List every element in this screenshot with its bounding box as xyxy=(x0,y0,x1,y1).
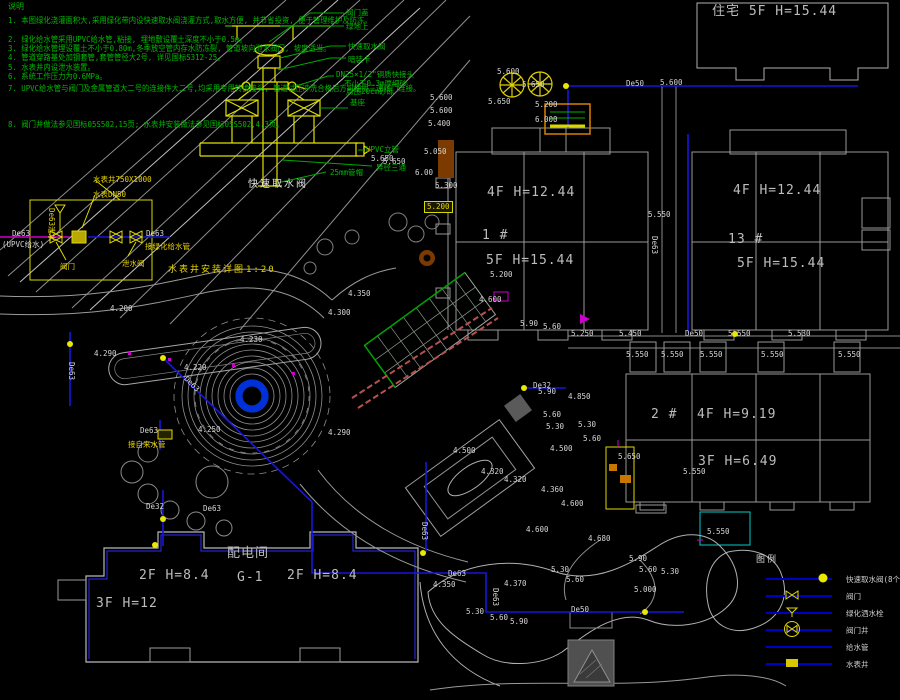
elevation-label: 5.250 xyxy=(571,330,594,338)
cad-drawing-canvas: 说明 1. 本图绿化浇灌面积大,采用绿化带内设快速取水阀浇灌方式,取水方便, 并… xyxy=(0,0,900,700)
meter-detail-label: (UPVC给水) xyxy=(2,241,44,249)
elevation-label: 5.600 xyxy=(660,79,683,87)
detail-part-label: 25mm管帽 xyxy=(330,169,363,177)
building-label: 13 # xyxy=(728,233,763,246)
elevation-label: 4.350 xyxy=(348,290,371,298)
detail-part-label: 周围20cm砂砾 xyxy=(346,88,394,96)
elevation-label: 5.30 xyxy=(661,568,679,576)
elevation-label: 4.250 xyxy=(198,426,221,434)
elevation-label: 5.60 xyxy=(543,323,561,331)
pavilion xyxy=(504,394,532,422)
elevation-label: 5.550 xyxy=(707,528,730,536)
building-label: 4F H=9.19 xyxy=(697,408,776,421)
fountain-pool xyxy=(239,383,265,409)
elevation-label: 5.30 xyxy=(546,423,564,431)
legend-item-valve: 阀门 xyxy=(756,588,898,605)
building-label: 2 # xyxy=(651,408,677,421)
legend-item-label: 阀门井 xyxy=(846,625,869,636)
elevation-label: 5.050 xyxy=(424,148,447,156)
meter-detail-label: 接绿化给水管 xyxy=(145,243,190,251)
elevation-label: 5.600 xyxy=(430,94,453,102)
boxed-elevation-label: 5.200 xyxy=(424,201,453,213)
pipe-size-label: De50 xyxy=(685,330,703,338)
pipe-size-label: De63 xyxy=(140,427,158,435)
elevation-label: 6.000 xyxy=(535,116,558,124)
pipe-size-label: De32 xyxy=(146,503,164,511)
building-label: 配电间 xyxy=(227,547,269,560)
elevation-label: 5.60 xyxy=(566,576,584,584)
building-1-outline xyxy=(436,128,648,340)
pipe-size-label: De63 xyxy=(68,362,76,380)
legend-item-valve-well: 阀门井 xyxy=(756,622,898,639)
legend-item-label: 给水管 xyxy=(846,642,869,653)
meter-detail-scale: 1:20 xyxy=(246,266,276,275)
meter-symbol-plan xyxy=(158,430,172,439)
legend-item-quick-intake-valve: 快速取水阀(8个) xyxy=(756,571,898,588)
elevation-label: 5.60 xyxy=(490,614,508,622)
building-2-outline xyxy=(626,342,870,510)
elevation-label: 5.30 xyxy=(578,421,596,429)
detail-part-label: 绿地上 xyxy=(346,23,369,31)
meter-detail-label: 阀门 xyxy=(60,263,75,271)
elevation-label: 4.500 xyxy=(453,447,476,455)
elevation-label: 5.550 xyxy=(728,330,751,338)
elevation-label: 5.550 xyxy=(683,468,706,476)
notes-title: 说明 xyxy=(8,1,378,12)
building-13-outline xyxy=(692,130,890,340)
elevation-label: 5.650 xyxy=(618,453,641,461)
pipe-size-label: De63 xyxy=(492,588,500,606)
elevation-label: 5.60 xyxy=(583,435,601,443)
pipe-size-label: De63 xyxy=(448,570,466,578)
elevation-label: 4.600 xyxy=(561,500,584,508)
elevation-label: 4.600 xyxy=(479,296,502,304)
elevation-label: 4.320 xyxy=(504,476,527,484)
elevation-label: 4.290 xyxy=(328,429,351,437)
elevation-label: 4.220 xyxy=(184,364,207,372)
elevation-label: 4.360 xyxy=(541,486,564,494)
pipe-size-label: De50 xyxy=(626,80,644,88)
elevation-label: 5.650 xyxy=(488,98,511,106)
elevation-label: 4.350 xyxy=(433,581,456,589)
elevation-label: 5.90 xyxy=(629,555,647,563)
detail-part-label: 阀门盖 xyxy=(346,9,369,17)
elevation-label: 4.200 xyxy=(110,305,133,313)
elevation-label: 5.550 xyxy=(838,351,861,359)
detail-part-label: DN25×1/2"铜质快接头 xyxy=(336,71,414,79)
elevation-label: 5.000 xyxy=(634,586,657,594)
building-label: G-1 xyxy=(237,571,263,584)
elevation-label: 5.90 xyxy=(520,320,538,328)
elevation-label: 5.550 xyxy=(761,351,784,359)
elevation-label: 5.450 xyxy=(619,330,642,338)
legend-item-sprinkler: 绿化洒水栓 xyxy=(756,605,898,622)
legend-item-label: 绿化洒水栓 xyxy=(846,608,884,619)
valve-detail-caption: 快速取水阀 xyxy=(248,180,308,190)
meter-detail-label: De63泄水 xyxy=(48,208,56,241)
elevation-label: 4.500 xyxy=(550,445,573,453)
pipe-size-label: De63 xyxy=(203,505,221,513)
elevation-label: 5.200 xyxy=(535,101,558,109)
elevation-label: 5.30 xyxy=(466,608,484,616)
road-lines xyxy=(568,86,900,348)
legend-item-label: 水表井 xyxy=(846,659,869,670)
elevation-label: 5.60 xyxy=(639,566,657,574)
elevation-label: 5.60 xyxy=(543,411,561,419)
elevation-label: 5.300 xyxy=(435,182,458,190)
note-item: 8. 阀门井做法参见国标05S502,15页; 水表井安装做法参见国标05S50… xyxy=(8,119,284,130)
elevation-label: 4.320 xyxy=(481,468,504,476)
trees xyxy=(304,213,439,274)
general-notes: 说明 1. 本图绿化浇灌面积大,采用绿化带内设快速取水阀浇灌方式,取水方便, 并… xyxy=(8,1,378,14)
meter-detail-label: 水表井750X1000 xyxy=(93,176,152,184)
meter-detail-label: De63 xyxy=(146,230,164,238)
building-label: 5F H=15.44 xyxy=(486,254,574,267)
elevation-label: 4.370 xyxy=(504,580,527,588)
elevation-label: 4.290 xyxy=(94,350,117,358)
legend-item-label: 阀门 xyxy=(846,591,861,602)
pipe-size-label: De50 xyxy=(571,606,589,614)
building-label: 4F H=12.44 xyxy=(733,184,821,197)
pipe-size-label: De63 xyxy=(421,522,429,540)
elevation-label: 5.550 xyxy=(626,351,649,359)
building-label: 5F H=15.44 xyxy=(737,257,825,270)
building-label: 2F H=8.4 xyxy=(139,569,210,582)
pipe-line-sample xyxy=(766,612,832,614)
detail-part-label: 暗装卡 xyxy=(348,56,371,64)
detail-part-label: 快速取水阀 xyxy=(348,43,386,51)
elevation-label: 4.230 xyxy=(240,336,263,344)
building-label: 1 # xyxy=(482,229,508,242)
detail-part-label: 基座 xyxy=(350,99,365,107)
building-label: 3F H=12 xyxy=(96,597,158,610)
elevation-label: 6.00 xyxy=(415,169,433,177)
elevation-label: 4.680 xyxy=(588,535,611,543)
elevation-label: 4.300 xyxy=(328,309,351,317)
note-item: 6. 系统工作压力为0.6MPa。 xyxy=(8,71,107,82)
elevation-label: 5.550 xyxy=(661,351,684,359)
elevation-label: 5.600 xyxy=(430,107,453,115)
building-label: 住宅 5F H=15.44 xyxy=(712,5,837,18)
detail-part-label: 异径三通 xyxy=(376,164,406,172)
pipe-line-sample xyxy=(766,646,832,648)
pipe-size-label: De63 xyxy=(651,236,659,254)
legend: 图例 快速取水阀(8个)阀门绿化洒水栓阀门井给水管水表井 xyxy=(756,552,898,673)
elevation-label: 4.850 xyxy=(568,393,591,401)
pipe-line-sample xyxy=(766,663,832,665)
elevation-label: 5.30 xyxy=(551,566,569,574)
meter-detail-label: De63 xyxy=(12,230,30,238)
elevation-label: 5.550 xyxy=(648,211,671,219)
meter-detail-label: 泄水阀 xyxy=(122,260,145,268)
elevation-label: 5.530 xyxy=(788,330,811,338)
legend-item-meter-well: 水表井 xyxy=(756,656,898,673)
elevation-label: 5.90 xyxy=(510,618,528,626)
elevation-label: 4.600 xyxy=(526,526,549,534)
planter-bench xyxy=(107,325,323,386)
elevation-label: 5.600 xyxy=(497,68,520,76)
water-pipes xyxy=(70,86,858,612)
elevation-label: 5.400 xyxy=(428,120,451,128)
building-label: 2F H=8.4 xyxy=(287,569,358,582)
legend-item-water-pipe: 给水管 xyxy=(756,639,898,656)
building-label: 4F H=12.44 xyxy=(487,186,575,199)
pipe-note-label: 接自来水管 xyxy=(128,441,166,449)
detail-part-label: UPVC立管 xyxy=(366,146,399,154)
pipe-size-label: De32 xyxy=(533,382,551,390)
legend-item-label: 快速取水阀(8个) xyxy=(846,574,900,585)
meter-detail-caption: 水表井安装详图 xyxy=(168,266,245,275)
building-label: 3F H=6.49 xyxy=(698,455,777,468)
note-item: 1. 本图绿化浇灌面积大,采用绿化带内设快速取水阀浇灌方式,取水方便, 并节省投… xyxy=(8,15,372,26)
legend-title: 图例 xyxy=(756,552,898,565)
elevation-label: 5.550 xyxy=(700,351,723,359)
elevation-label: 5.200 xyxy=(490,271,513,279)
elevation-label: 5.650 xyxy=(522,81,545,89)
meter-detail-label: 水表DN50 xyxy=(93,191,126,199)
